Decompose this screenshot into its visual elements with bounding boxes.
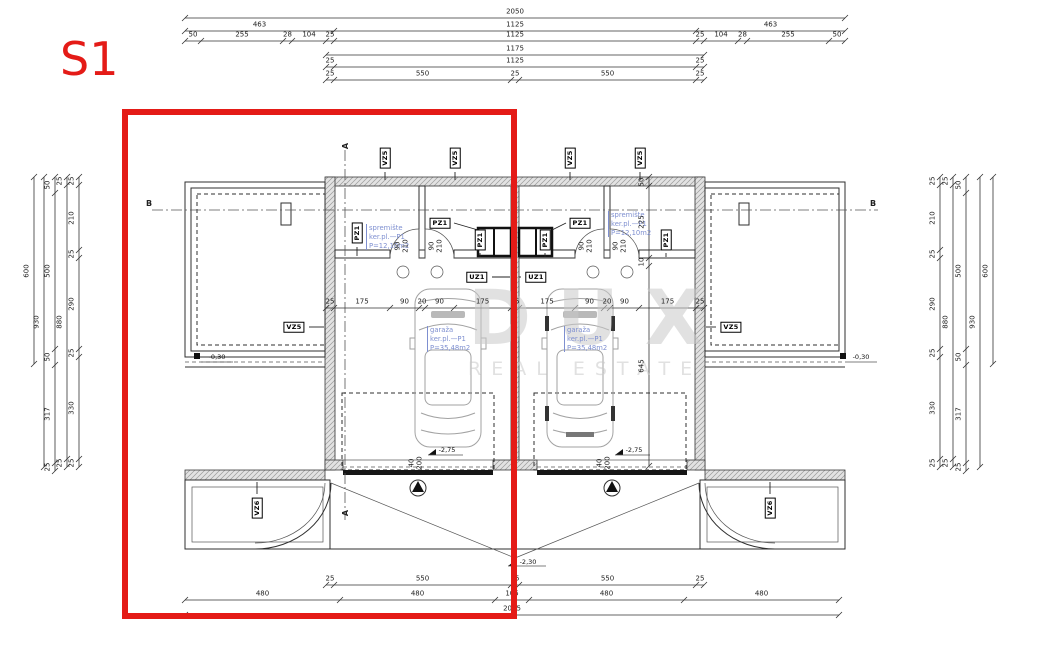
room-label-garage-right: garaža ker.pl.—P1 P=35,48m2 bbox=[564, 326, 607, 352]
room-name: garaža bbox=[567, 326, 607, 335]
room-finish: ker.pl.—P1 bbox=[567, 335, 607, 344]
room-finish: ker.pl.—P1 bbox=[611, 220, 651, 229]
page-title: S1 bbox=[60, 32, 118, 86]
car-right bbox=[542, 289, 618, 447]
room-label-storage-right: spremište ker.pl.—P1 P=12,10m2 bbox=[608, 211, 651, 237]
floor-plan-page: DUX REAL ESTATE spremište ker.pl.—P1 P=1… bbox=[0, 0, 1040, 662]
room-area: P=35,48m2 bbox=[567, 344, 607, 353]
selection-rectangle-s1 bbox=[122, 109, 517, 619]
room-area: P=12,10m2 bbox=[611, 229, 651, 238]
room-name: spremište bbox=[611, 211, 651, 220]
